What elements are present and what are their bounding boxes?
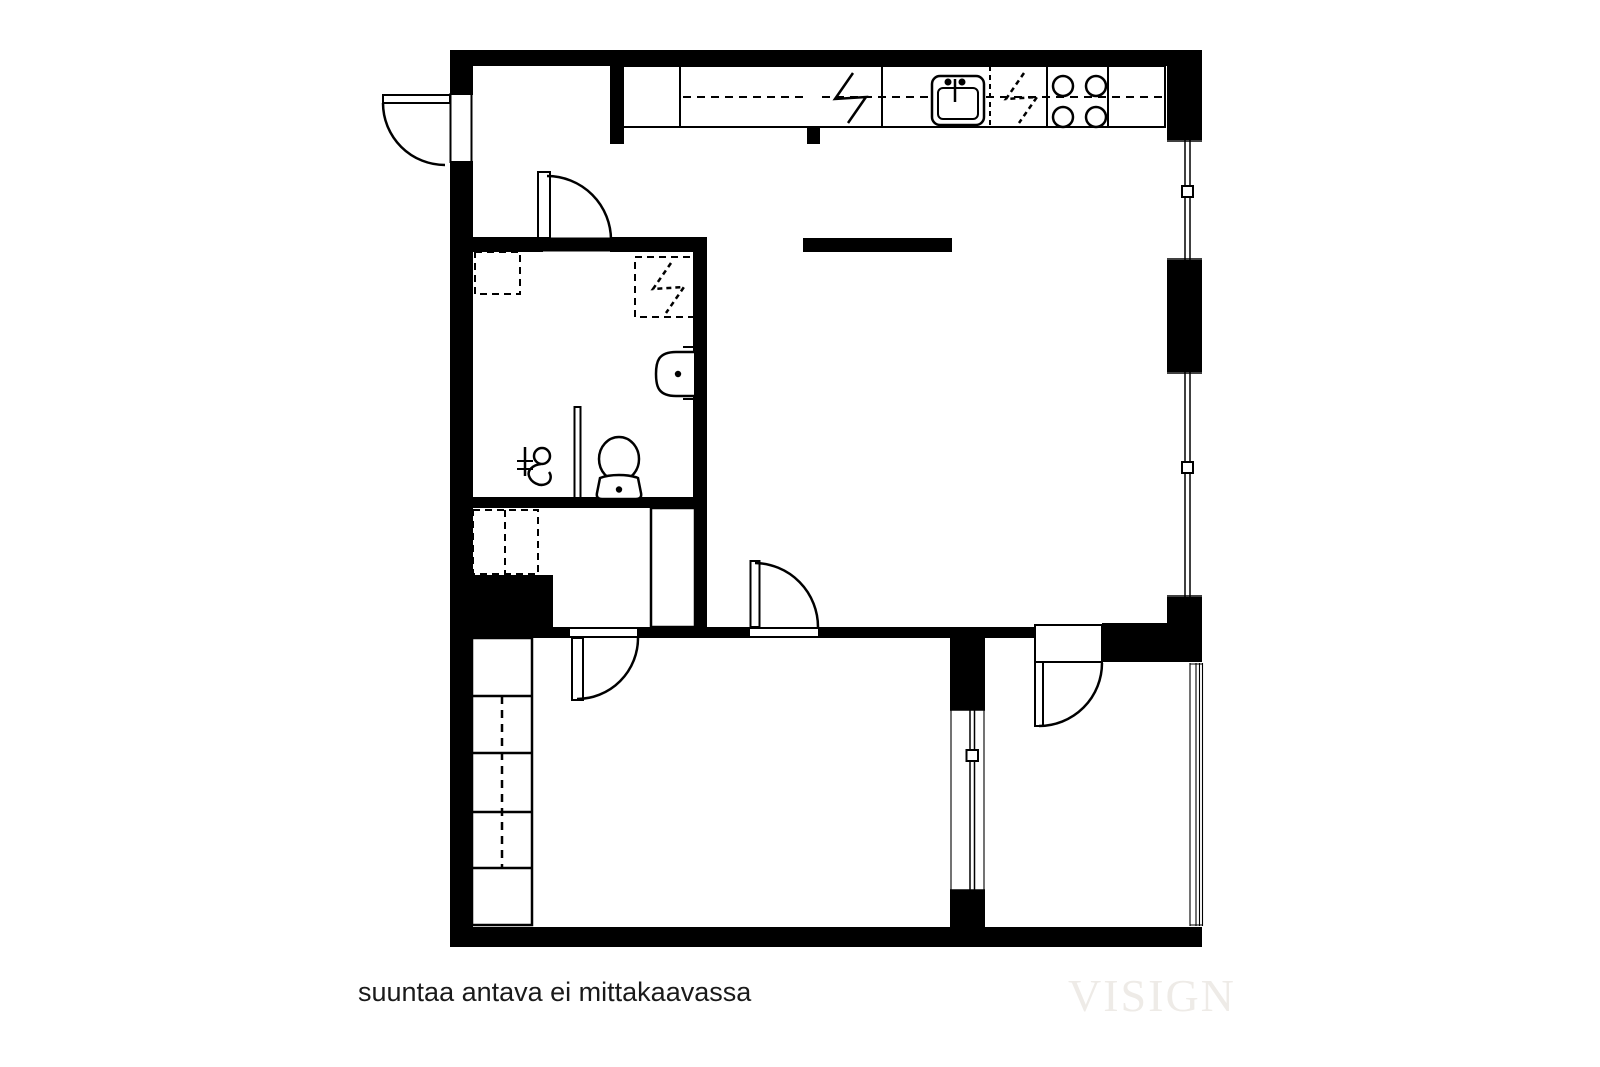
duct-shaft-icon (651, 508, 695, 627)
bottom-wall (450, 927, 1202, 947)
shower-screen-icon (575, 407, 581, 498)
toilet-icon (597, 437, 641, 499)
right-wall-segment-1 (1167, 50, 1202, 140)
footer-note: suuntaa antava ei mittakaavassa (358, 977, 752, 1007)
interior-door-icon (538, 172, 611, 251)
interior-window-icon (950, 710, 985, 890)
bedroom-wall-segment-1 (553, 627, 570, 638)
bathroom-top-wall-left (472, 237, 543, 252)
bedroom-wall-segment-2 (637, 627, 750, 638)
wardrobe-cells-icon (472, 638, 532, 925)
window-icon (1167, 372, 1202, 597)
room-divider-column-top (950, 638, 985, 710)
interior-door-icon (750, 561, 818, 637)
kitchen-wall-stub-left (610, 66, 624, 144)
right-wall-segment-2 (1167, 260, 1202, 372)
floor-plan-page: suuntaa antava ei mittakaavassa VISIGN (0, 0, 1600, 1067)
entry-door-icon (383, 94, 472, 165)
room-divider-column-bottom (950, 890, 985, 927)
left-wall-main (450, 161, 473, 927)
bedroom-wall-segment-3 (818, 627, 1035, 638)
washing-machine-reservation-icon (475, 252, 520, 294)
partition-bar-icon (803, 238, 952, 252)
window-icon (1190, 663, 1203, 926)
bathroom-top-wall-right (610, 237, 707, 252)
bathroom-bottom-wall (472, 497, 707, 508)
shower-mixer-icon (517, 447, 551, 485)
right-wall-segment-3 (1167, 597, 1202, 662)
left-wall-above-entry (450, 50, 473, 95)
floor-plan-drawing: suuntaa antava ei mittakaavassa VISIGN (0, 0, 1600, 1067)
second-room-top-wall (1102, 623, 1167, 662)
interior-door-icon (570, 628, 638, 700)
hall-wall-block (472, 575, 553, 638)
dryer-reservation-dashed-bolt-icon (635, 257, 695, 317)
bathroom (475, 252, 707, 499)
interior-door-icon (1035, 625, 1102, 726)
kitchen (623, 66, 1165, 127)
kitchen-sink-icon (932, 76, 984, 125)
window-icon (1167, 140, 1202, 260)
hall-closet-reservation-icon (473, 510, 538, 574)
windows (950, 140, 1203, 926)
top-wall (452, 50, 1202, 66)
watermark-logo: VISIGN (1068, 970, 1236, 1021)
